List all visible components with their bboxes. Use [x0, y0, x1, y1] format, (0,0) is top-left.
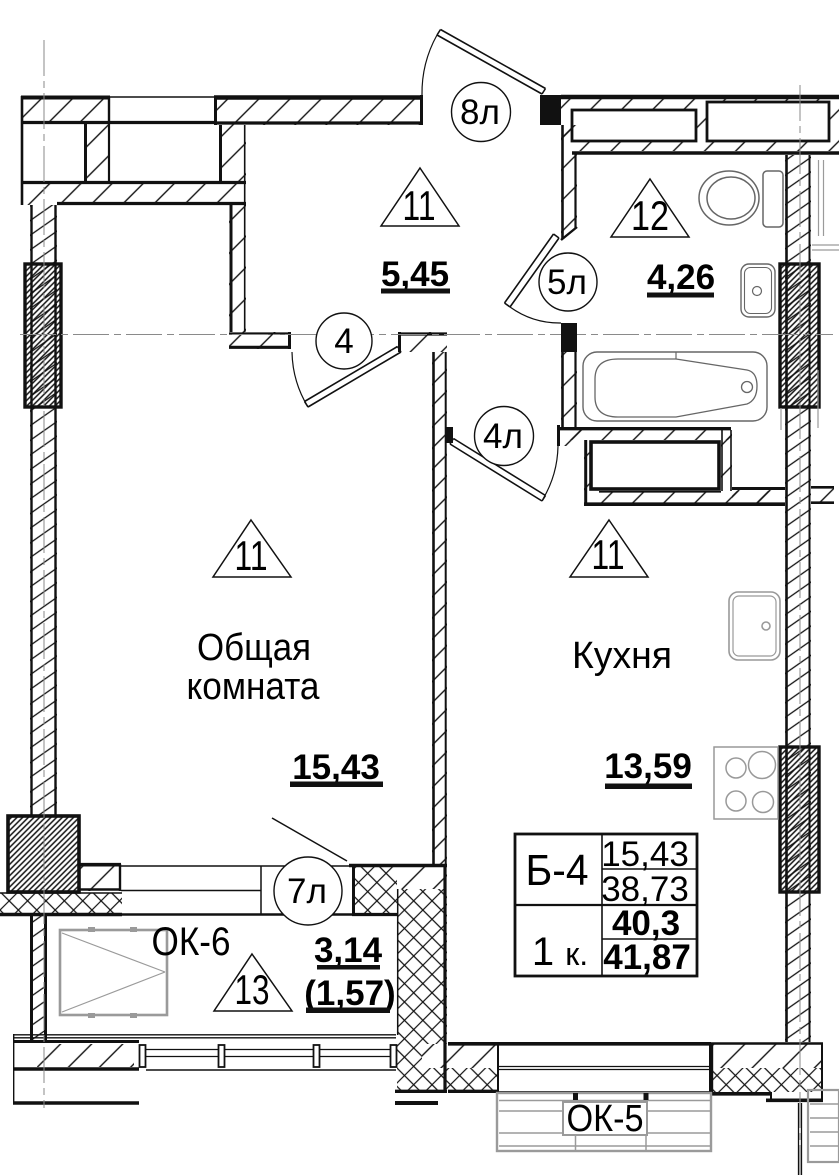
svg-text:13,59: 13,59: [604, 747, 692, 786]
svg-text:15,43: 15,43: [601, 835, 689, 874]
svg-text:11: 11: [592, 531, 625, 578]
svg-text:12: 12: [631, 192, 669, 239]
svg-text:(1,57): (1,57): [304, 974, 395, 1013]
svg-text:ОК-5: ОК-5: [567, 1098, 644, 1140]
svg-text:Б-4: Б-4: [526, 846, 589, 895]
svg-text:5л: 5л: [547, 263, 587, 302]
svg-text:8л: 8л: [460, 93, 500, 132]
svg-text:3,14: 3,14: [314, 931, 383, 970]
svg-text:ОК-6: ОК-6: [152, 920, 231, 964]
svg-text:7л: 7л: [287, 872, 327, 911]
svg-text:11: 11: [403, 182, 436, 229]
svg-text:Общая: Общая: [197, 627, 311, 669]
svg-text:4,26: 4,26: [647, 258, 715, 297]
svg-text:41,87: 41,87: [603, 938, 691, 977]
svg-text:15,43: 15,43: [292, 748, 380, 787]
svg-text:5,45: 5,45: [381, 255, 449, 294]
svg-text:4л: 4л: [483, 417, 523, 456]
svg-text:13: 13: [235, 966, 270, 1013]
svg-text:комната: комната: [187, 666, 321, 708]
svg-text:4: 4: [334, 322, 353, 361]
svg-text:Кухня: Кухня: [572, 635, 672, 677]
svg-text:1 к.: 1 к.: [532, 930, 588, 974]
svg-text:11: 11: [235, 532, 268, 579]
